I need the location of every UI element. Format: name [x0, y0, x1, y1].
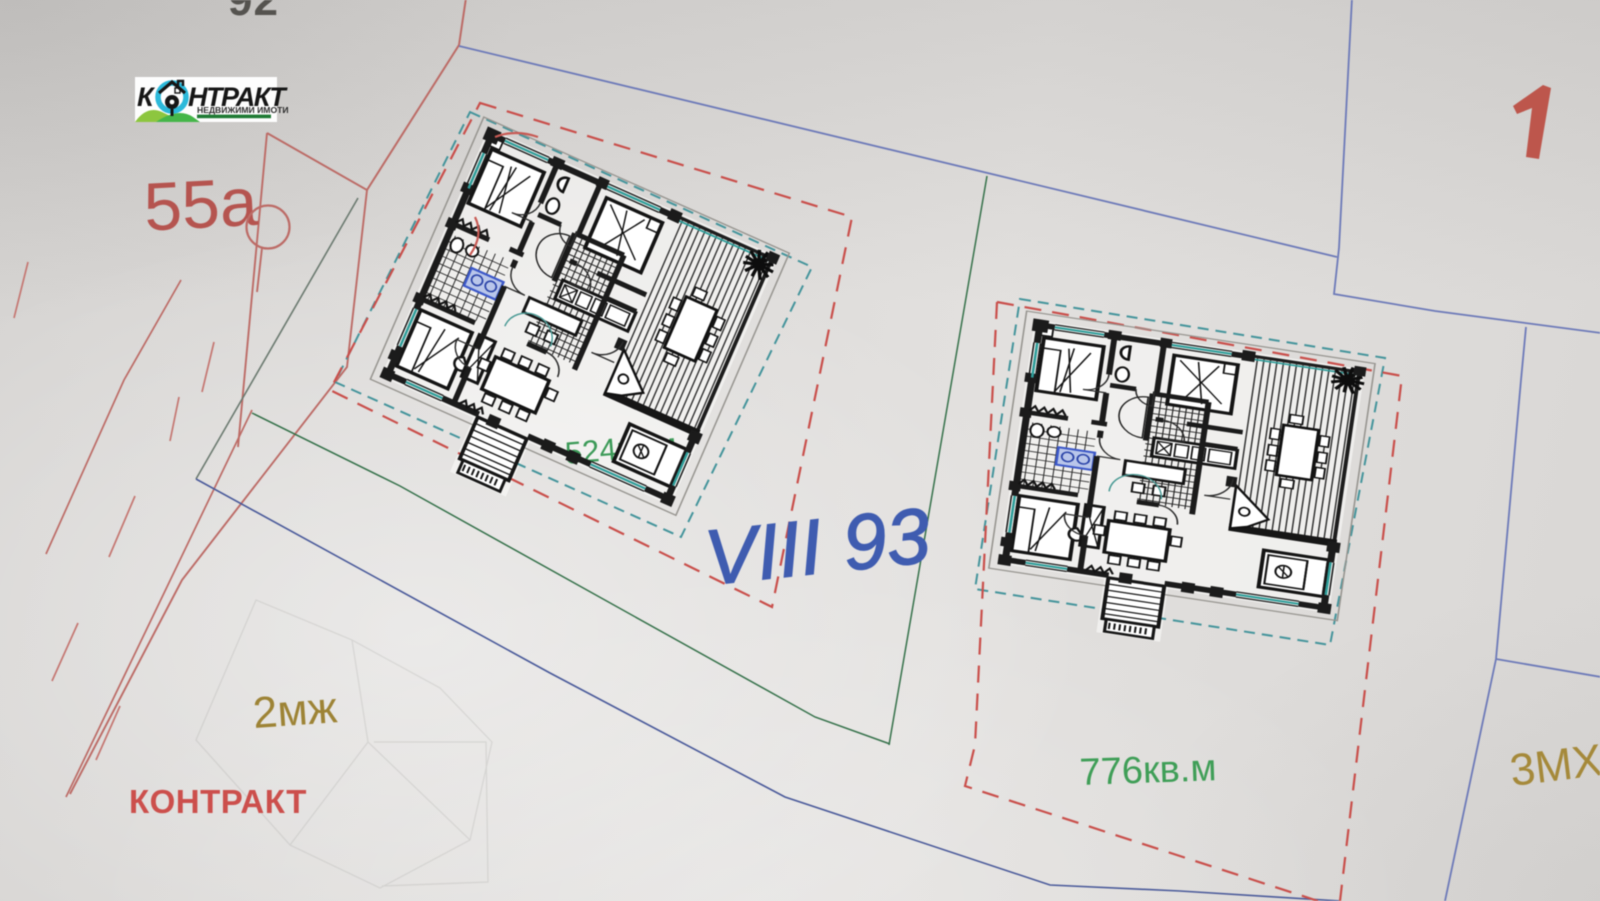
svg-text:КОНТРАКТ: КОНТРАКТ	[129, 783, 307, 820]
svg-text:776кв.м: 776кв.м	[1079, 747, 1217, 794]
svg-text:2мж: 2мж	[251, 683, 339, 738]
svg-text:92: 92	[228, 0, 279, 25]
svg-text:55a: 55a	[142, 164, 259, 246]
svg-text:К: К	[137, 82, 156, 112]
svg-text:НЕДВИЖИМИ ИМОТИ: НЕДВИЖИМИ ИМОТИ	[197, 105, 289, 115]
svg-text:3МХ: 3МХ	[1507, 734, 1600, 796]
svg-text:VIII 93: VIII 93	[701, 491, 934, 602]
